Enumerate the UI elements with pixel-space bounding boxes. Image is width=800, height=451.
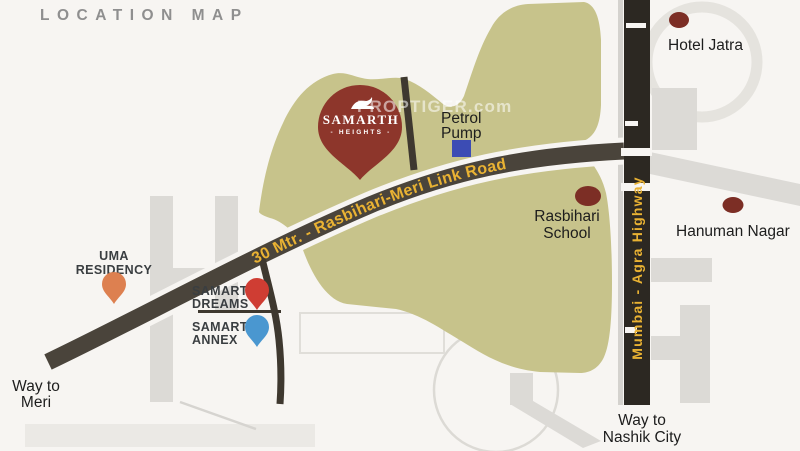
highway-lane-dash	[625, 121, 638, 126]
watermark-text: PROPTIGER.com	[357, 97, 512, 116]
uma-residency-label-line1: UMA	[99, 249, 129, 263]
gray-road-light	[25, 424, 315, 447]
highway-label: Mumbai - Agra Highway	[629, 176, 645, 359]
landmark-samarth-annex: SAMARTH ANNEX	[192, 315, 269, 347]
gray-road	[618, 0, 623, 405]
way-to-meri-line1: Way to	[12, 378, 60, 395]
gray-road	[652, 88, 697, 150]
way-to-nashik-line2: Nashik City	[603, 429, 682, 446]
gray-road	[651, 336, 680, 360]
project-subname: - HEIGHTS -	[330, 129, 391, 136]
samarth-dreams-label-line2: DREAMS	[192, 297, 249, 311]
rasbihari-school-marker	[575, 186, 601, 206]
location-map: 30 Mtr. - Rasbihari-Meri Link Road Mumba…	[0, 0, 800, 451]
hotel-jatra-label: Hotel Jatra	[668, 37, 743, 54]
rasbihari-school-label-line1: Rasbihari	[534, 208, 599, 225]
petrol-pump-marker	[452, 140, 471, 157]
way-to-nashik-line1: Way to	[618, 412, 666, 429]
highway-lane-dash	[626, 23, 646, 28]
location-map-page: 30 Mtr. - Rasbihari-Meri Link Road Mumba…	[0, 0, 800, 451]
hotel-jatra-marker	[669, 12, 689, 28]
way-to-meri-line2: Meri	[21, 394, 51, 411]
gray-road	[651, 258, 712, 282]
petrol-pump-label-line2: Pump	[441, 125, 482, 142]
hanuman-nagar-marker	[723, 197, 744, 213]
highway-junction-gap	[621, 148, 652, 156]
page-title: LOCATION MAP	[40, 7, 249, 24]
samarth-annex-label-line2: ANNEX	[192, 333, 238, 347]
rasbihari-school-label-line2: School	[543, 225, 590, 242]
hanuman-nagar-label: Hanuman Nagar	[676, 223, 790, 240]
gray-road	[680, 305, 710, 403]
